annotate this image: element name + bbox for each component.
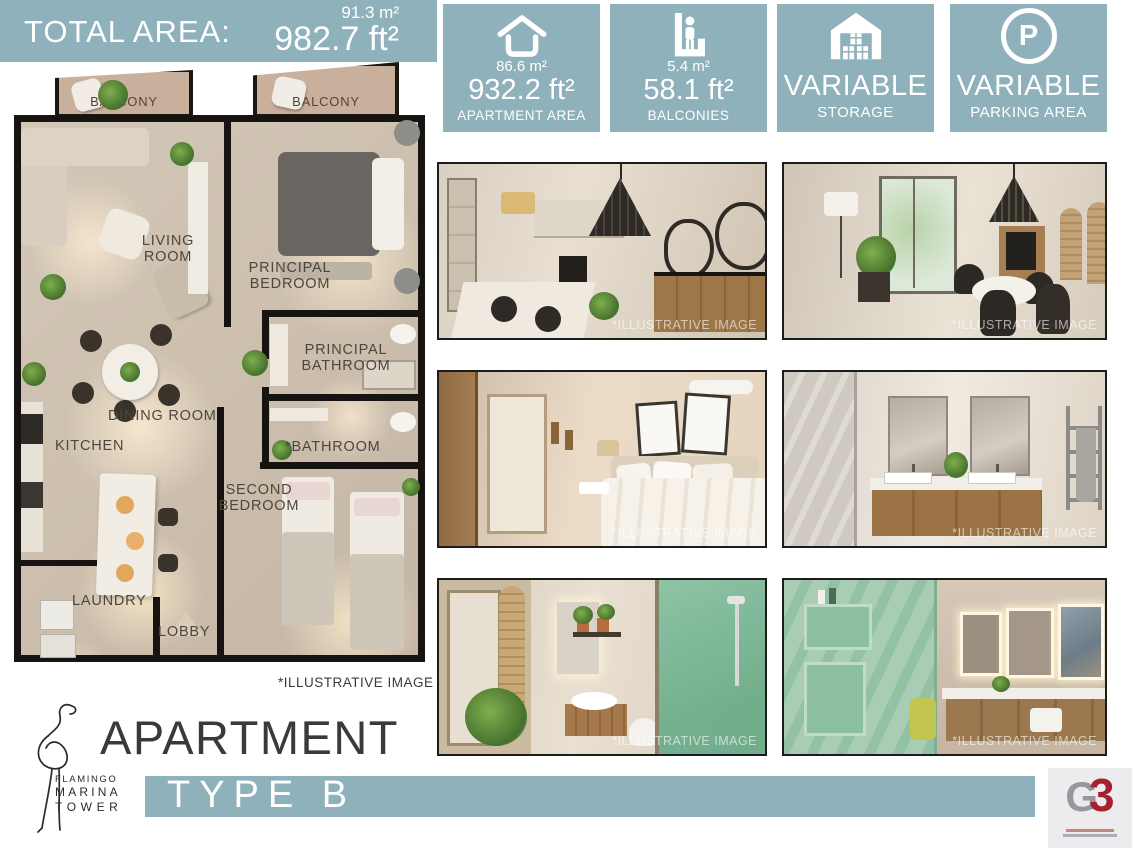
- basin-shape: [571, 692, 617, 710]
- wall: [262, 310, 425, 317]
- g3-tagline-line: [1063, 834, 1117, 837]
- floorplan: BALCONY BALCONY: [10, 62, 427, 674]
- badge-label: STORAGE: [777, 104, 934, 121]
- terracotta-pot-shape: [597, 618, 609, 632]
- shower-bar-shape: [735, 600, 739, 686]
- plant-shape: [992, 676, 1010, 692]
- shower-niche-shape: [804, 604, 872, 650]
- island-light: [126, 532, 144, 550]
- principal-bathroom-label: PRINCIPAL BATHROOM: [296, 343, 396, 375]
- principal-bed-pillows: [372, 158, 404, 250]
- badge-label: PARKING AREA: [950, 104, 1107, 121]
- g3-developer-logo: G3: [1048, 768, 1132, 848]
- photo-shower-bathroom: *ILLUSTRATIVE IMAGE: [437, 578, 767, 756]
- washer: [40, 600, 74, 630]
- green-glass-shower-shape: [655, 580, 767, 756]
- pendant-cord-shape: [1013, 164, 1015, 178]
- stool: [158, 554, 178, 572]
- principal-bedroom-label-line2: BEDROOM: [240, 277, 340, 293]
- second-bedroom-label-line2: BEDROOM: [216, 499, 302, 515]
- mirror-shape: [888, 396, 948, 476]
- total-area-banner: TOTAL AREA: 91.3 m² 982.7 ft²: [0, 0, 437, 62]
- toilet: [390, 412, 416, 432]
- wall: [260, 462, 425, 469]
- plant: [98, 80, 128, 110]
- bed-blanket: [282, 532, 334, 625]
- g3-tagline-line: [1066, 829, 1114, 832]
- island-shape: [451, 282, 596, 340]
- badge-ft2: 932.2 ft²: [443, 74, 600, 107]
- watermark: *ILLUSTRATIVE IMAGE: [612, 526, 757, 540]
- brand-line-flamingo: FLAMINGO: [55, 774, 125, 785]
- stool-shape: [491, 296, 517, 322]
- watermark: *ILLUSTRATIVE IMAGE: [952, 318, 1097, 332]
- island-light: [116, 564, 134, 582]
- stove: [21, 414, 43, 444]
- pendant-cord-shape: [620, 164, 622, 180]
- floor-lamp-shade-shape: [824, 192, 858, 216]
- wire-mirror-shape: [664, 219, 714, 279]
- storage-boxes-icon: [777, 10, 934, 62]
- principal-bathroom-label-line1: PRINCIPAL: [296, 343, 396, 359]
- marble-wall-shape: [784, 372, 857, 548]
- wall: [224, 115, 231, 327]
- table-lamp-shape: [597, 440, 619, 456]
- wall: [21, 560, 101, 566]
- bed-blanket: [350, 554, 404, 650]
- sofa: [21, 128, 149, 166]
- floorplan-illustrative-note: *ILLUSTRATIVE IMAGE: [278, 675, 434, 690]
- photo-double-vanity-bathroom: *ILLUSTRATIVE IMAGE: [782, 370, 1107, 548]
- principal-bedroom-label-line1: PRINCIPAL: [240, 261, 340, 277]
- rattan-arch-shape: [1060, 208, 1082, 280]
- wall: [262, 394, 425, 401]
- total-area-ft2: 982.7 ft²: [274, 22, 399, 58]
- watermark: *ILLUSTRATIVE IMAGE: [612, 734, 757, 748]
- badge-value: VARIABLE: [950, 70, 1107, 103]
- window-mullion-shape: [913, 176, 915, 288]
- hamper-shape: [910, 698, 936, 740]
- bottle-shape: [818, 590, 825, 604]
- plant-shape: [589, 292, 619, 320]
- towels-shape: [579, 482, 609, 494]
- dining-chair: [150, 324, 172, 346]
- house-outline-icon: [443, 10, 600, 62]
- plant-shape: [573, 606, 593, 624]
- rattan-arch-shape: [1087, 202, 1107, 284]
- principal-bathroom-label-line2: BATHROOM: [296, 359, 396, 375]
- living-room-label-line1: LIVING: [136, 234, 200, 250]
- total-area-label: TOTAL AREA:: [24, 14, 231, 50]
- balcony-label: BALCONY: [257, 95, 395, 109]
- mirror-shape: [970, 396, 1030, 476]
- tv-screen-shape: [1006, 232, 1036, 270]
- living-room-label: LIVING ROOM: [136, 234, 200, 266]
- floor-lamp-pole-shape: [840, 216, 842, 278]
- dining-chair: [158, 384, 180, 406]
- photo-living-room: *ILLUSTRATIVE IMAGE: [782, 162, 1107, 340]
- plant: [402, 478, 420, 496]
- photo-kitchen-dining: *ILLUSTRATIVE IMAGE: [437, 162, 767, 340]
- dining-room-label: DINING ROOM: [108, 409, 217, 425]
- stool-shape: [535, 306, 561, 332]
- wall-hook-shape: [551, 422, 559, 444]
- plant: [242, 350, 268, 376]
- badge-parking: P VARIABLE PARKING AREA: [950, 4, 1107, 132]
- type-b-bar: TYPE B: [145, 776, 1035, 817]
- watermark: *ILLUSTRATIVE IMAGE: [612, 318, 757, 332]
- window-shape: [879, 176, 957, 294]
- plant-shape: [944, 452, 968, 478]
- bathroom-vanity: [270, 324, 288, 386]
- shower-head-shape: [727, 596, 745, 604]
- wall: [217, 407, 224, 655]
- palm-plant-shape: [465, 688, 527, 746]
- parking-icon: P: [950, 10, 1107, 62]
- principal-bed-blanket: [278, 152, 380, 256]
- watermark: *ILLUSTRATIVE IMAGE: [952, 734, 1097, 748]
- brand-line-tower: TOWER: [55, 800, 125, 814]
- apartment-title: APARTMENT: [100, 710, 399, 765]
- shelf-shape: [573, 632, 621, 637]
- kitchen-label: KITCHEN: [55, 439, 124, 455]
- nightstand: [394, 268, 420, 294]
- toilet: [390, 324, 416, 344]
- badge-value: VARIABLE: [777, 70, 934, 103]
- plant: [40, 274, 66, 300]
- laundry-label: LAUNDRY: [72, 594, 147, 610]
- badge-m2: 86.6 m²: [443, 58, 600, 75]
- countertop-shape: [942, 688, 1107, 699]
- plant-shape: [597, 604, 615, 620]
- dining-chair: [80, 330, 102, 352]
- lobby-label: LOBBY: [158, 625, 210, 641]
- plant: [170, 142, 194, 166]
- sink-shape: [968, 472, 1016, 484]
- bathroom-vanity: [270, 408, 328, 421]
- dining-chair: [72, 382, 94, 404]
- towel-shape: [1030, 708, 1062, 732]
- planter-shape: [858, 272, 890, 302]
- badge-label: APARTMENT AREA: [443, 108, 600, 123]
- plant: [120, 362, 140, 382]
- badge-balconies: 5.4 m² 58.1 ft² BALCONIES: [610, 4, 767, 132]
- dryer: [40, 634, 76, 658]
- badge-label: BALCONIES: [610, 108, 767, 123]
- island-light: [116, 496, 134, 514]
- parking-letter: P: [1019, 20, 1038, 53]
- tv-console: [188, 162, 208, 294]
- wall-hook-shape: [565, 430, 573, 450]
- second-bedroom-label: SECOND BEDROOM: [216, 483, 302, 515]
- lit-mirror-shape: [1006, 608, 1054, 678]
- pillow: [354, 498, 400, 516]
- g3-letter-3: 3: [1089, 769, 1115, 821]
- apartment-type-b-poster: TOTAL AREA: 91.3 m² 982.7 ft² 86.6 m² 93…: [0, 0, 1140, 855]
- plant: [22, 362, 46, 386]
- wall-frame-shape: [635, 401, 681, 458]
- balcony-person-icon: [610, 10, 767, 62]
- type-b-label: TYPE B: [167, 774, 356, 817]
- bathroom-label: *BATHROOM: [285, 440, 381, 456]
- pendant-lamp-shape: [989, 176, 1039, 222]
- balcony-right: BALCONY: [253, 62, 399, 118]
- second-bedroom-label-line1: SECOND: [216, 483, 302, 499]
- lit-mirror-shape: [1058, 604, 1104, 680]
- brand-line-marina: MARINA: [55, 785, 125, 799]
- photo-bedroom: *ILLUSTRATIVE IMAGE: [437, 370, 767, 548]
- doorway-shape: [487, 394, 547, 534]
- lit-mirror-shape: [960, 612, 1002, 676]
- brand-text: FLAMINGO MARINA TOWER: [55, 774, 125, 814]
- badge-storage: VARIABLE STORAGE: [777, 4, 934, 132]
- wardrobe-shape: [439, 372, 478, 548]
- badge-m2: 5.4 m²: [610, 58, 767, 75]
- badge-apartment-area: 86.6 m² 932.2 ft² APARTMENT AREA: [443, 4, 600, 132]
- ac-unit-shape: [689, 380, 753, 394]
- stool: [158, 508, 178, 526]
- wire-mirror-shape: [715, 202, 767, 270]
- fridge: [21, 482, 43, 508]
- living-room-label-line2: ROOM: [136, 250, 200, 266]
- photo-green-marble-bathroom: *ILLUSTRATIVE IMAGE: [782, 578, 1107, 756]
- watermark: *ILLUSTRATIVE IMAGE: [952, 526, 1097, 540]
- sink-shape: [884, 472, 932, 484]
- principal-bedroom-label: PRINCIPAL BEDROOM: [240, 261, 340, 293]
- gold-chandelier-shape: [501, 192, 535, 214]
- towel-shape: [1076, 428, 1096, 502]
- bottle-shape: [829, 588, 836, 604]
- wall-frame-shape: [681, 392, 731, 455]
- shower-niche-shape: [804, 662, 866, 736]
- badge-ft2: 58.1 ft²: [610, 74, 767, 107]
- nightstand: [394, 120, 420, 146]
